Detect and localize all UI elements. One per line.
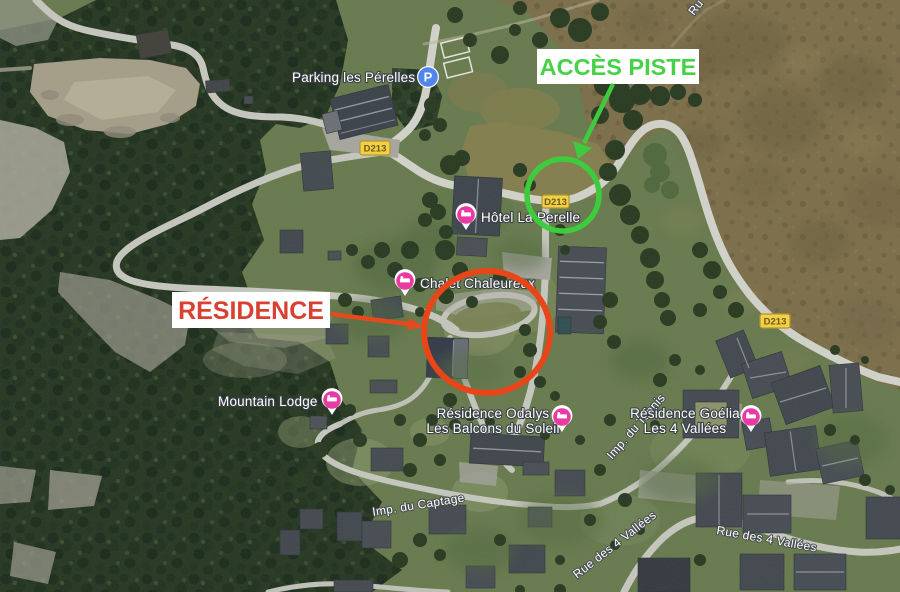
svg-text:D213: D213 (544, 197, 567, 208)
svg-text:Mountain Lodge: Mountain Lodge (218, 394, 318, 409)
svg-text:Parking les Pérelles: Parking les Pérelles (292, 70, 415, 85)
svg-text:RÉSIDENCE: RÉSIDENCE (178, 296, 324, 325)
svg-text:P: P (424, 70, 433, 85)
svg-text:D213: D213 (364, 144, 387, 155)
svg-text:Les Balcons du Soleil: Les Balcons du Soleil (426, 421, 559, 436)
svg-text:Résidence Odalys: Résidence Odalys (437, 406, 550, 421)
svg-text:ACCÈS PISTE: ACCÈS PISTE (540, 53, 697, 80)
svg-text:D213: D213 (764, 317, 787, 328)
svg-text:Résidence Goélia: Résidence Goélia (630, 406, 740, 421)
svg-text:Les 4 Vallées: Les 4 Vallées (644, 421, 727, 436)
